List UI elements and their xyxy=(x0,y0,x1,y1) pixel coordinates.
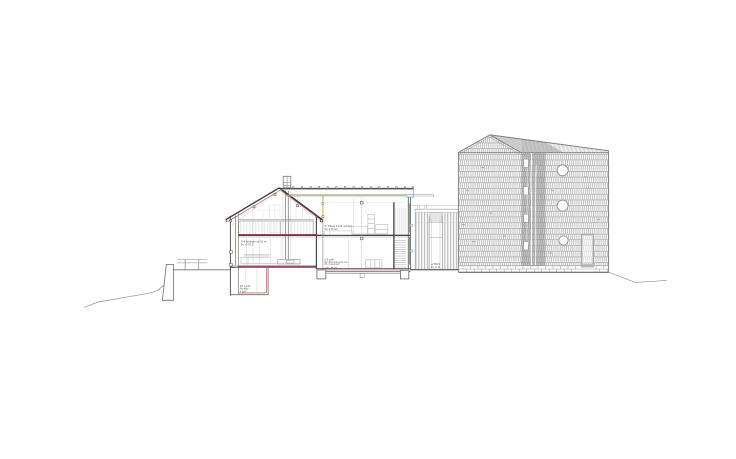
svg-text:Wc d 35 l2b: Wc d 35 l2b xyxy=(325,228,339,231)
svg-text:4 vm²: 4 vm² xyxy=(240,290,246,293)
svg-text:OK d kommod: OK d kommod xyxy=(324,264,339,266)
svg-text:Bv +0 00.0: Bv +0 00.0 xyxy=(241,243,254,247)
svg-text:Rx +6.46: Rx +6.46 xyxy=(431,267,441,269)
svg-text:+2 560 0: +2 560 0 xyxy=(431,263,441,266)
